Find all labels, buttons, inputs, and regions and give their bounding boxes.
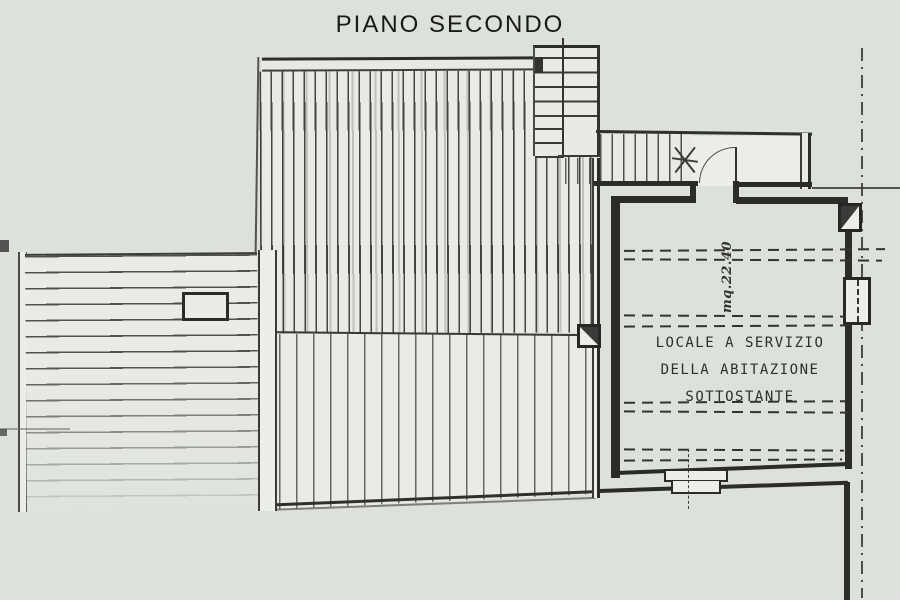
central-roof-lower-slope — [262, 334, 592, 510]
room-bottom-inner-wall — [615, 462, 849, 475]
corridor-bottom-wall — [594, 181, 698, 186]
height-dash-line — [624, 258, 882, 261]
room-area-label: mq.22.40 — [720, 236, 736, 318]
room-label: LOCALE A SERVIZIO DELLA ABITAZIONE SOTTO… — [628, 330, 852, 411]
height-dash-line — [624, 448, 844, 451]
threshold-centerline — [688, 449, 689, 509]
room-top-wall — [736, 197, 848, 204]
central-roof-ridge-band — [262, 56, 535, 71]
niche-centerline — [857, 280, 859, 322]
stair-treads-lower-flight — [535, 128, 564, 158]
door-leaf — [735, 147, 737, 184]
flue-symbol-mid — [577, 324, 601, 348]
landing-right-wall — [800, 133, 811, 189]
site-line-right — [812, 187, 900, 189]
flue-triangle-icon — [841, 206, 859, 229]
flue-triangle-icon — [580, 327, 598, 345]
scan-fold-line — [0, 428, 70, 430]
window-niche — [843, 277, 871, 325]
height-dash-line — [624, 324, 850, 327]
wall-between-roofs — [258, 250, 277, 511]
scan-margin-mark — [0, 429, 7, 436]
room-bottom-outer-wall — [599, 481, 848, 493]
room-top-wall — [611, 196, 693, 203]
building-outer-wall — [844, 482, 850, 600]
staircase-enclosure — [533, 45, 600, 156]
left-roof-hatched-area — [25, 252, 259, 511]
room-label-line-2: DELLA ABITAZIONE — [628, 357, 852, 384]
stair-center-stringer — [562, 38, 564, 158]
height-dash-line — [624, 458, 842, 461]
door-jamb — [690, 181, 696, 203]
plan-title: PIANO SECONDO — [0, 11, 900, 39]
room-label-line-3: SOTTOSTANTE — [628, 384, 852, 411]
stair-direction-mark — [668, 143, 702, 177]
stair-corner-block — [535, 57, 543, 73]
room-label-line-1: LOCALE A SERVIZIO — [628, 330, 852, 357]
room-left-wall — [611, 196, 620, 478]
threshold-inner-step — [671, 481, 721, 494]
flue-symbol-corner — [838, 203, 862, 232]
corridor-bottom-wall — [734, 182, 812, 187]
stair-treads-upper-flight — [535, 57, 597, 128]
scan-margin-mark — [0, 240, 9, 252]
door-jamb — [733, 181, 739, 203]
floor-plan-canvas: PIANO SECONDO — [0, 0, 900, 600]
central-roof-left-edge — [255, 57, 260, 253]
skylight-opening — [182, 292, 229, 321]
